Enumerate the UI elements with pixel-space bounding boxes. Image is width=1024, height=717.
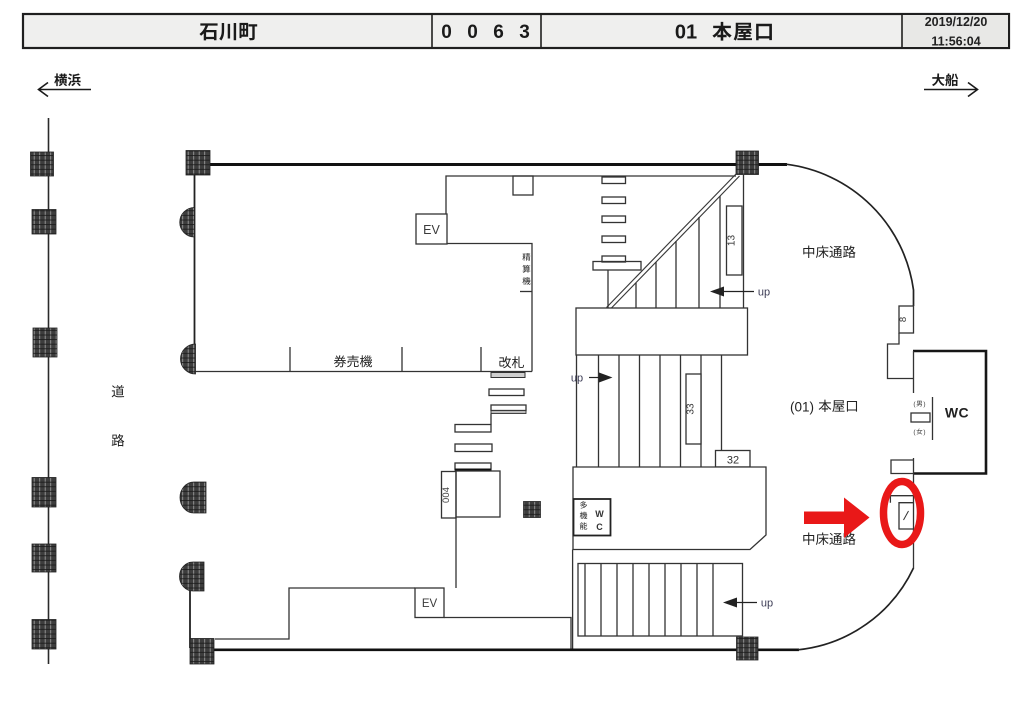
svg-text:): ) [923,429,925,436]
svg-text:11:56:04: 11:56:04 [931,35,980,49]
svg-text:13: 13 [727,235,738,247]
svg-text:32: 32 [727,455,739,467]
svg-text:3: 3 [519,22,530,43]
svg-text:up: up [761,598,773,610]
svg-text:EV: EV [423,223,440,237]
svg-text:33: 33 [686,403,697,415]
svg-text:2019/12/20: 2019/12/20 [925,15,988,29]
svg-text:0: 0 [441,22,452,43]
svg-text:8: 8 [898,317,909,322]
svg-text:0: 0 [467,22,478,43]
svg-text:(: ( [913,429,916,436]
svg-text:01: 01 [675,22,697,44]
svg-text:C: C [596,522,603,532]
svg-text:WC: WC [945,405,969,421]
svg-text:(01): (01) [790,400,814,415]
svg-text:EV: EV [422,598,438,610]
svg-text:up: up [571,373,583,385]
svg-text:004: 004 [441,487,452,503]
svg-text:up: up [758,287,770,299]
svg-text:W: W [595,509,604,519]
svg-text:(: ( [913,401,916,408]
svg-text:6: 6 [493,22,504,43]
svg-text:): ) [923,401,925,408]
